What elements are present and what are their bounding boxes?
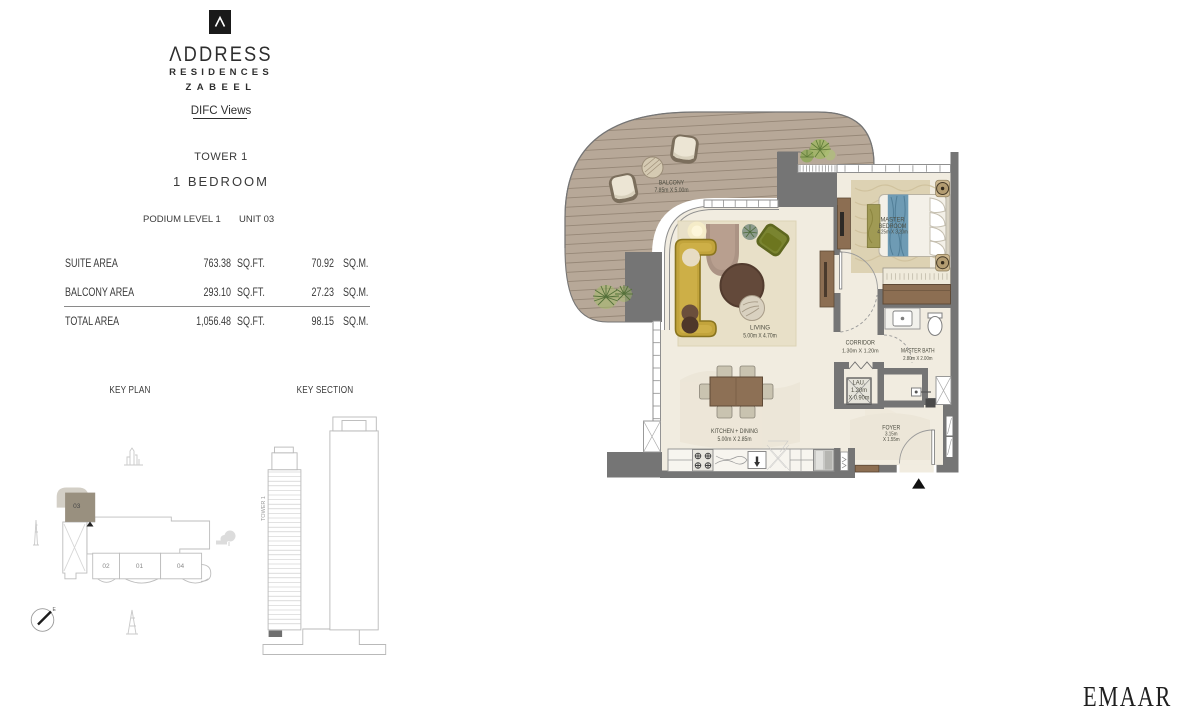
svg-text:TOWER 1: TOWER 1 — [261, 496, 267, 521]
svg-text:1.30m X 1.20m: 1.30m X 1.20m — [842, 348, 879, 354]
svg-text:01: 01 — [136, 563, 144, 570]
svg-text:FOYER: FOYER — [882, 425, 900, 432]
svg-text:04: 04 — [177, 563, 185, 570]
svg-text:5.00m X 2.85m: 5.00m X 2.85m — [718, 436, 752, 443]
svg-text:KITCHEN + DINING: KITCHEN + DINING — [711, 428, 758, 435]
svg-text:CORRIDOR: CORRIDOR — [846, 339, 876, 346]
svg-text:LIVING: LIVING — [750, 325, 770, 331]
svg-text:E: E — [53, 607, 57, 613]
svg-text:03: 03 — [73, 503, 81, 510]
svg-text:X 0.90m: X 0.90m — [849, 396, 870, 402]
svg-text:2.80m X 2.00m: 2.80m X 2.00m — [903, 356, 932, 362]
svg-text:BALCONY: BALCONY — [659, 180, 685, 187]
svg-text:MASTER BATH: MASTER BATH — [901, 348, 935, 355]
svg-text:5.00m X 4.70m: 5.00m X 4.70m — [743, 333, 777, 339]
svg-text:4.25m X 3.20m: 4.25m X 3.20m — [877, 230, 908, 236]
svg-text:X 1.55m: X 1.55m — [883, 437, 900, 443]
svg-text:7.85m X 5.00m: 7.85m X 5.00m — [655, 187, 689, 194]
svg-text:02: 02 — [102, 563, 110, 570]
svg-text:LAU.: LAU. — [853, 381, 866, 387]
svg-text:1.20m: 1.20m — [851, 388, 867, 394]
